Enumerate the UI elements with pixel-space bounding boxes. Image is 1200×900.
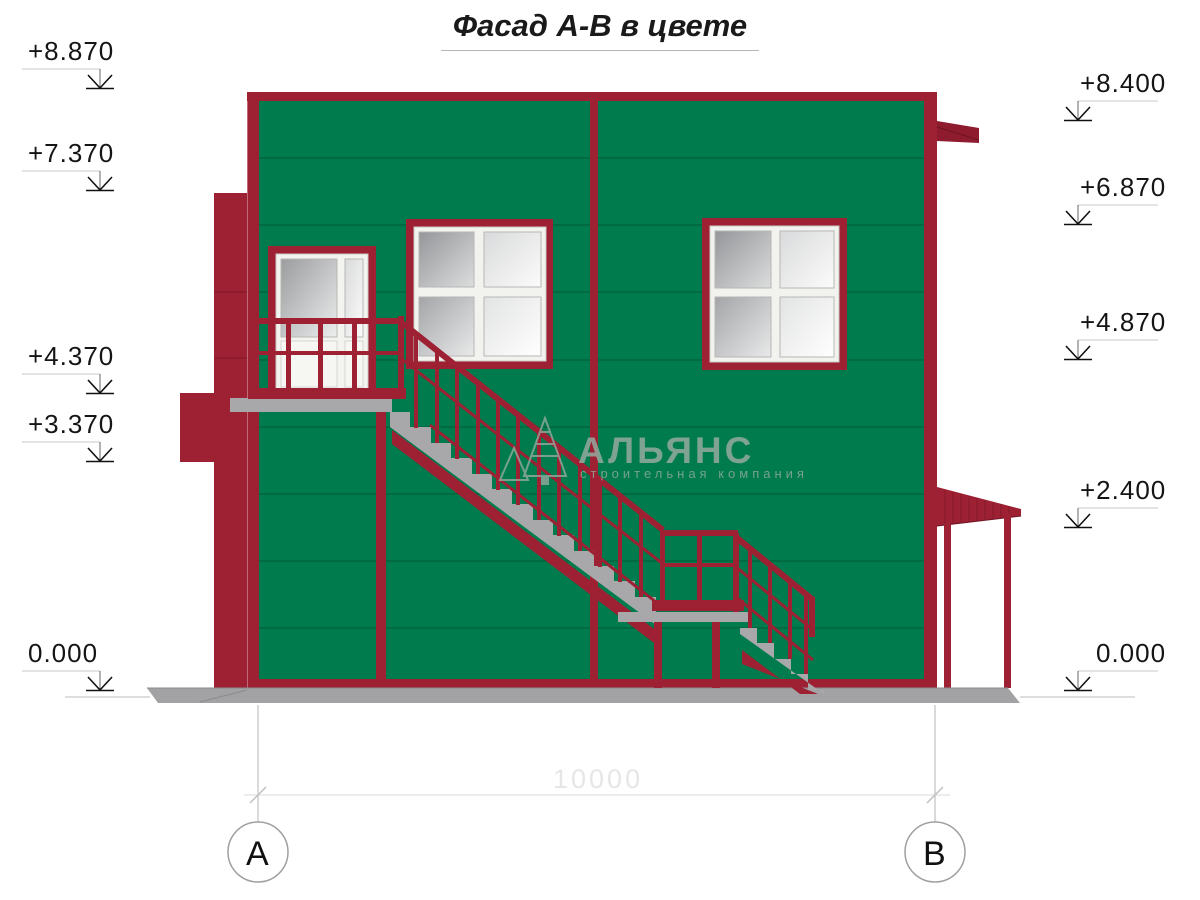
dimension-value: 10000 [553,764,643,794]
canopy-post [1004,514,1011,688]
axis-letter-b: В [923,835,946,873]
watermark-name: АЛЬЯНС [578,430,754,471]
axis-circle-a: А [228,822,288,882]
canopy-post [944,524,951,688]
dimension-line-group: 10000 [244,705,950,822]
axis-circle-b: В [905,822,965,882]
balcony-platform [230,398,392,412]
ground-pavement [147,688,1020,703]
facade-center-seam [590,101,598,690]
axis-letter-a: А [246,835,269,873]
roof-overhang [937,121,979,143]
facade-drawing: Фасад А-В в цвете +8.870 +7.370 +4.370 +… [0,0,1200,900]
building-elevation-svg: АЛЬЯНС строительная компания 10000 А В [0,0,1200,900]
watermark-tagline: строительная компания [580,466,808,481]
stair-landing [618,612,748,622]
window-right [702,218,847,370]
entrance-canopy [937,487,1021,688]
